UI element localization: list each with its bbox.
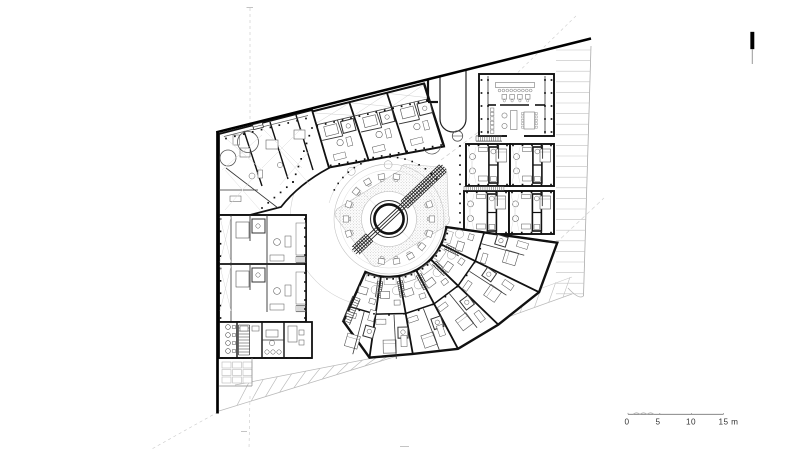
svg-text:5: 5 xyxy=(656,418,661,427)
svg-text:15 m: 15 m xyxy=(719,418,739,427)
svg-text:0: 0 xyxy=(625,418,630,427)
svg-text:10: 10 xyxy=(686,418,696,427)
